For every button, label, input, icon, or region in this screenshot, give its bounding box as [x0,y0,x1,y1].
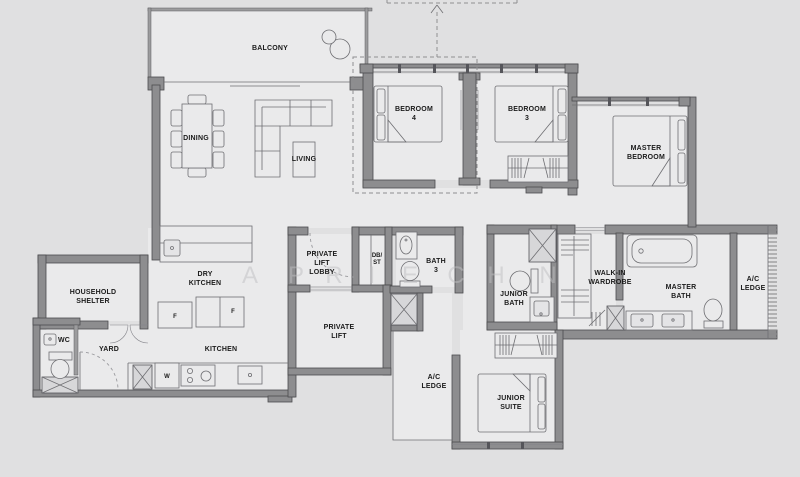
pillow [377,89,385,113]
private-lift-lobby-label: LIFT [314,260,330,267]
watermark-letter: A [242,262,258,289]
shaft-icon [391,294,417,325]
junior-suite-label: SUITE [500,404,522,411]
master-bedroom-door-line [575,228,605,231]
walk-in-wardrobe-label: WARDROBE [588,279,631,286]
walk-in-wardrobe-label: WALK-IN [594,270,625,277]
private-lift-label: PRIVATE [324,324,355,331]
watermark-letter: H [487,262,504,289]
pillow [678,120,685,150]
dbst-label: DB/ [372,253,383,259]
master-bath-label: BATH [671,293,691,300]
junior-bath-label: JUNIOR [500,291,528,298]
shaft-icon [607,306,624,330]
master-bedroom-label: MASTER [631,145,662,152]
ac-ledge-louvre-edge [768,226,777,338]
bedroom4-furniture [374,86,442,142]
pillow [377,115,385,140]
sink-icon [530,297,554,322]
dry-kitchen-label: DRY [197,271,212,278]
floor-plan-canvas: A P R I E C H N BALCONY DINING LIVING BE… [0,0,800,477]
stove-icon [181,365,215,386]
vanity-counter [626,311,692,330]
up-arrow-icon [431,5,443,13]
shaft-icon [133,365,152,389]
shower-icon [529,229,556,262]
pillow [558,115,566,140]
chair-icon [213,110,224,126]
balcony-label: BALCONY [252,45,288,52]
toilet-icon [510,269,538,293]
ac-ledge-right-label: LEDGE [740,285,765,292]
pillow [558,89,566,113]
master-bath-label: MASTER [666,284,697,291]
private-lift-lobby-label: LOBBY [309,269,335,276]
wardrobe-icon [495,333,557,358]
sink-icon [396,232,417,259]
dbst-label: ST [373,260,381,266]
pillow [678,153,685,183]
household-shelter-label: HOUSEHOLD [70,289,117,296]
master-bedroom-label: BEDROOM [627,154,665,161]
kitchen-sink-icon [238,366,262,384]
kitchen-label: KITCHEN [205,346,238,353]
wardrobe-icon [508,156,568,182]
island-sink-icon [164,240,180,256]
fridge-label: F [231,309,235,315]
private-lift-lobby-label: PRIVATE [307,251,338,258]
wc-label: WC [58,337,70,344]
chair-icon [188,95,206,104]
bath3-label: 3 [434,267,438,274]
sink-icon [44,334,56,345]
yard-label: YARD [99,346,119,353]
watermark-letter: P [288,262,304,289]
washer-label: W [164,374,170,380]
bedroom3-label: 3 [525,115,529,122]
watermark-letter: E [402,262,418,289]
ac-ledge-right-label: A/C [747,276,760,283]
chair-icon [171,152,182,168]
chair-icon [171,110,182,126]
bed-icon [495,86,568,142]
shaft-icon [42,377,78,393]
pillow [538,377,545,402]
bathtub-icon [627,235,697,267]
ac-ledge-center-label: A/C [428,374,441,381]
dining-label: DINING [183,135,209,142]
chair-icon [213,131,224,147]
toilet-icon [704,299,723,328]
bedroom4-label: 4 [412,115,416,122]
private-lift-label: LIFT [331,333,347,340]
chair-icon [188,168,206,177]
junior-suite-label: JUNIOR [497,395,525,402]
living-label: LIVING [292,156,317,163]
junior-bath-label: BATH [504,300,524,307]
watermark-letter: N [539,262,556,289]
bed-icon [478,374,546,432]
bath3-label: BATH [426,258,446,265]
master-bedroom-window-wall [572,97,690,106]
chair-icon [213,152,224,168]
dry-kitchen-label: KITCHEN [189,280,222,287]
floor-plan: A P R I E C H N BALCONY DINING LIVING BE… [0,0,800,477]
watermark-letter: C [447,262,464,289]
chair-icon [171,131,182,147]
fridge-label: F [173,314,177,320]
pillow [538,404,545,429]
watermark-letter: I [369,262,376,289]
ac-ledge-center-label: LEDGE [421,383,446,390]
household-shelter-label: SHELTER [76,298,110,305]
bedroom-window-wall [360,64,578,73]
bedroom3-label: BEDROOM [508,106,546,113]
sink-icon [662,314,684,327]
bedroom4-label: BEDROOM [395,106,433,113]
chair-icon [322,30,336,44]
sink-icon [631,314,653,327]
